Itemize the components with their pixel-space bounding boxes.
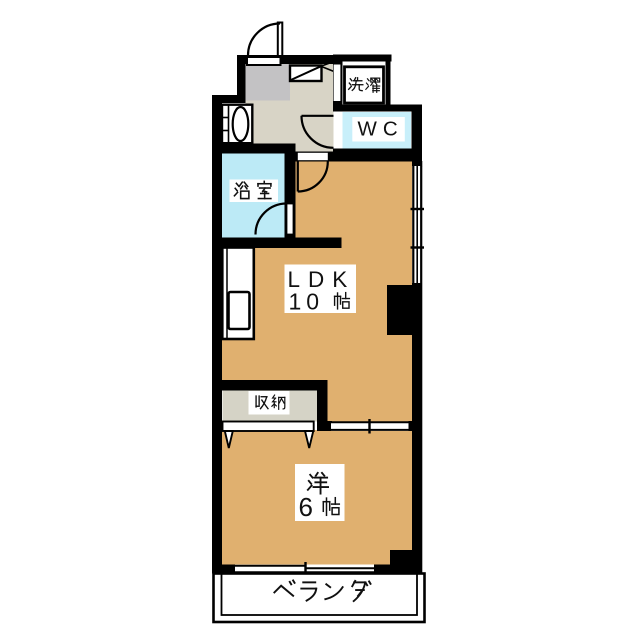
svg-text:6: 6 xyxy=(299,492,313,522)
svg-text:10: 10 xyxy=(289,289,325,315)
svg-text:WC: WC xyxy=(358,118,404,141)
